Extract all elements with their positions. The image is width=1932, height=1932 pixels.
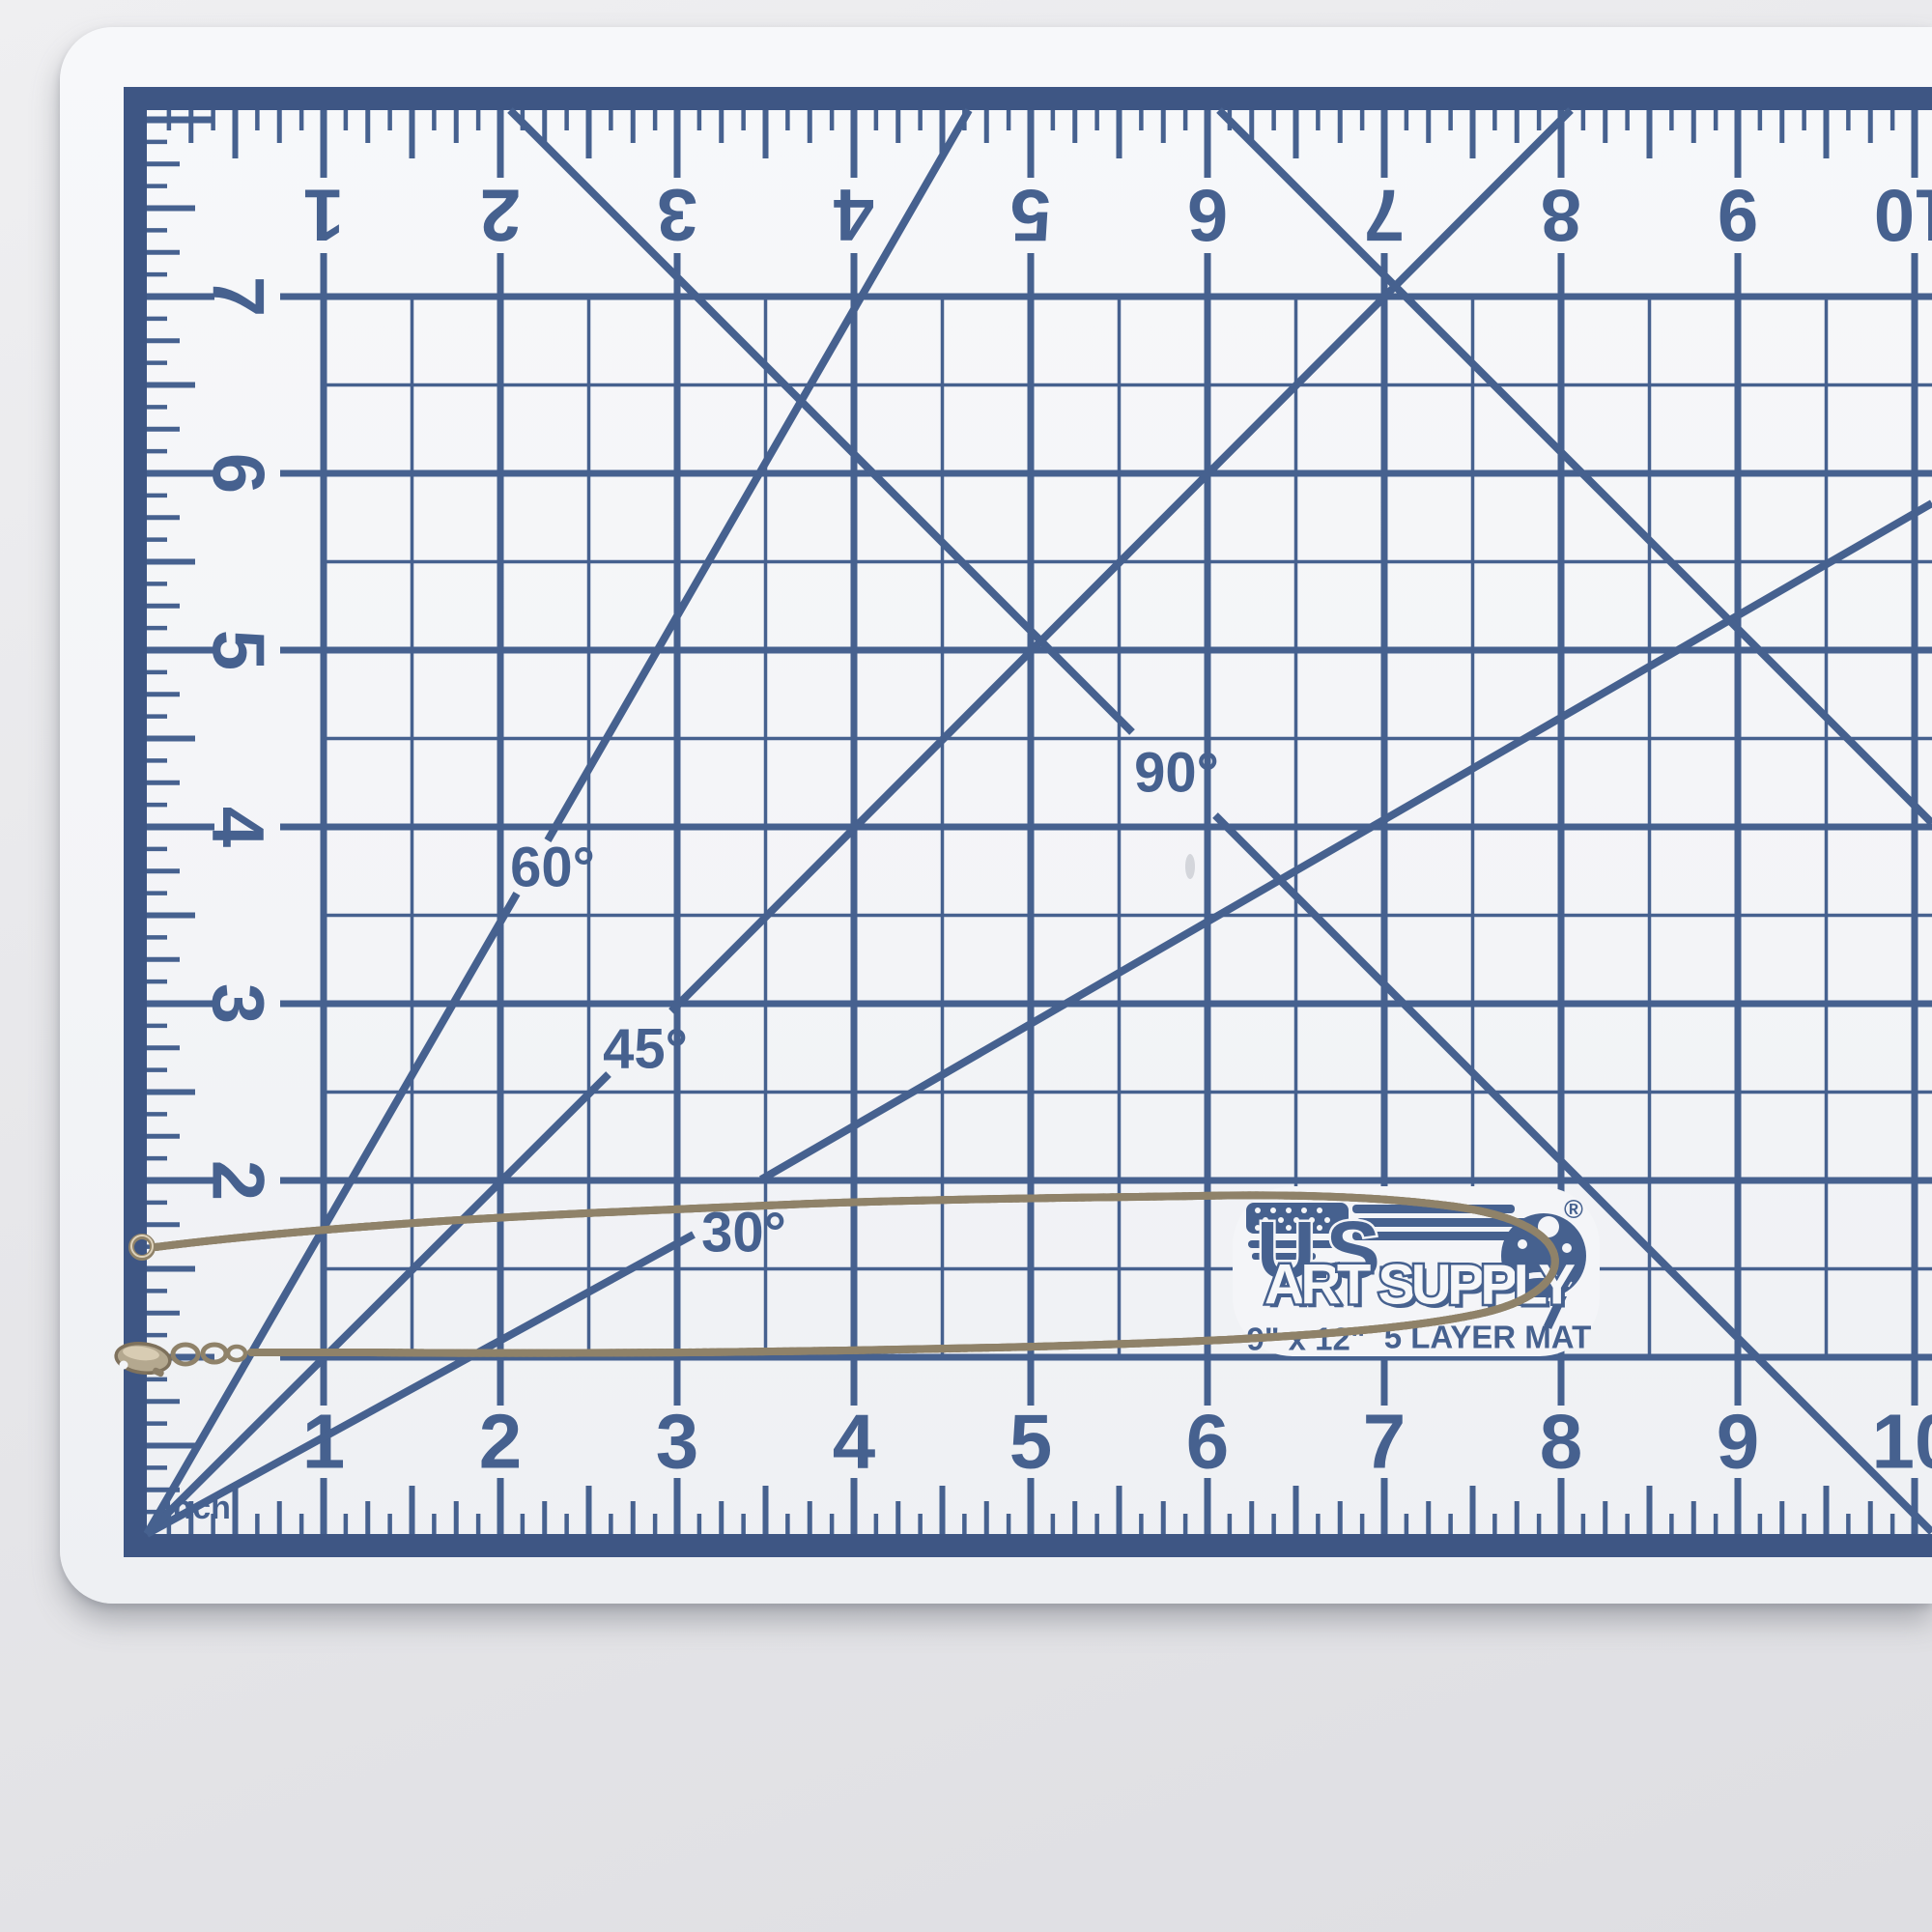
left-scale-number: 7 [197,276,279,317]
tick [918,1514,923,1534]
mat-artwork: 123456789101234567891076543230°45°60°90°… [0,0,1932,1932]
tick [387,110,392,130]
tick [147,250,180,255]
bottom-scale-number: 6 [1186,1399,1230,1485]
grid-line-inch-h [324,1178,1932,1184]
mat-border-bottom [124,1534,1932,1557]
grid-line-half-h [324,560,1932,564]
tick [255,110,260,130]
inch-stub [280,824,324,831]
tick [1691,1501,1696,1534]
tick [147,781,180,785]
tick [147,228,167,233]
grid-line-inch-h [324,470,1932,477]
tick [1470,1486,1476,1534]
tick [609,110,613,130]
tick [521,1514,526,1534]
tick [365,110,370,143]
tick [321,110,327,178]
tick [1625,1514,1630,1534]
clasp-hook-gap [120,1361,128,1370]
tick [299,110,304,130]
tick [631,110,636,143]
tick [1183,110,1188,130]
tick [147,1222,180,1227]
inch-stub [1205,253,1211,297]
tick [497,110,504,178]
tick [277,110,282,143]
inch-stub [280,294,324,300]
grid-line-inch-h [324,294,1932,300]
tick [233,1486,239,1534]
tick [147,582,167,586]
top-scale-number: 4 [834,174,874,256]
tick [674,1478,681,1534]
tick [1714,110,1719,130]
guide-line [147,1074,609,1534]
tick [1293,1486,1299,1534]
tick [1603,110,1607,143]
tick [1846,1514,1851,1534]
inch-stub [1912,253,1918,297]
tick [1581,110,1586,130]
registered-mark: ® [1564,1195,1583,1224]
guide-line [761,503,1932,1179]
tick [365,1501,370,1534]
unit-label: inch [163,1490,231,1526]
mat-border-top [124,87,1932,110]
angle-label: 90° [1134,742,1219,805]
tick [1581,1514,1586,1534]
tick [1205,110,1211,178]
grid-line-half-h [324,384,1932,387]
tick [147,1311,180,1316]
tick [147,515,180,520]
tick [147,1067,167,1072]
tick [1890,110,1895,130]
tick [410,1486,415,1534]
tick [1028,1478,1035,1534]
tick [918,110,923,130]
top-scale-number: 8 [1541,174,1581,256]
tick [321,1478,327,1534]
inch-stub [280,1178,324,1184]
tick [1492,1514,1497,1534]
top-scale-number: 6 [1187,174,1228,256]
tick [851,1478,858,1534]
tick [147,494,167,498]
tick [653,1514,658,1534]
tick [653,110,658,130]
tick [387,1514,392,1534]
tick [1028,110,1035,178]
grid-line-inch-h [324,1001,1932,1008]
clasp-link [228,1347,245,1360]
left-scale-number: 4 [197,807,279,847]
tick [830,1514,835,1534]
tick [1846,110,1851,130]
tick [497,1478,504,1534]
tick [147,1443,195,1449]
smudge [1185,854,1195,879]
tick [1691,110,1696,143]
inch-stub [1558,253,1565,297]
tick [147,383,195,388]
tick [1139,110,1144,130]
tick [147,1333,167,1338]
inch-stub [851,253,858,297]
mat-border-left [124,87,147,1557]
tick [147,1156,167,1161]
brand-logo: U.S. ART SUPPLY ART SUPPLY ® 9" x 12" 5 … [1233,1186,1600,1357]
tick [1381,110,1388,178]
tick [1183,1514,1188,1534]
tick [1448,110,1453,130]
tick [586,1486,592,1534]
grid-line-inch-h [324,647,1932,654]
grid-line-half-h [324,737,1932,741]
tick [851,110,858,178]
tick [1094,1514,1099,1534]
tick [147,317,167,322]
tick [609,1514,613,1534]
inch-stub [1028,253,1035,297]
tick [147,1090,195,1095]
tick [344,110,349,130]
grid-line-half-h [324,914,1932,918]
top-scale-number: 1 [303,174,344,256]
tick [1360,110,1365,130]
tick [586,110,592,158]
tick [147,957,180,962]
tick [1735,110,1742,178]
tick [1161,1501,1166,1534]
tick [147,1289,167,1293]
tick [147,670,167,675]
tick [1271,110,1276,130]
tick [984,110,989,143]
tick [1868,110,1873,143]
top-scale-number: 9 [1718,174,1758,256]
tick [147,868,180,873]
tick [1316,110,1321,130]
tick [719,1501,724,1534]
tick [1647,1486,1653,1534]
tick [1537,110,1542,130]
tick [1669,110,1674,130]
tick [895,110,900,143]
tick [1426,1501,1431,1534]
tick [874,110,879,130]
tick [895,1501,900,1534]
tick [1405,110,1409,130]
tick [808,1501,812,1534]
tick [1117,110,1122,158]
bottom-scale-number: 9 [1717,1399,1760,1485]
top-scale-number: 3 [657,174,697,256]
tick [1714,1514,1719,1534]
tick [1912,110,1918,178]
tick [1448,1514,1453,1534]
tick [147,1201,167,1206]
bottom-scale-number: 3 [656,1399,699,1485]
tick [147,140,167,145]
tick [147,604,180,609]
tick [564,1514,569,1534]
tick [147,736,195,742]
tick [410,110,415,158]
tick [1647,110,1653,158]
tick [147,626,167,631]
grid-line-inch-h [324,824,1932,831]
tick [147,161,180,166]
tick [984,1501,989,1534]
bottom-scale-number: 10 [1872,1399,1932,1485]
tick [1802,1514,1806,1534]
tick [1072,110,1077,143]
inch-stub [280,1001,324,1008]
tick [188,110,193,143]
tick [1492,110,1497,130]
tick [1161,110,1166,143]
tick [808,110,812,143]
tick [874,1514,879,1534]
tick [1381,1478,1388,1534]
tick [741,1514,746,1534]
grid-line-half-h [324,1091,1932,1094]
tick [147,913,195,919]
tick [940,1486,946,1534]
top-scale-number: 5 [1010,174,1051,256]
tick [631,1501,636,1534]
tick [1779,110,1784,143]
angle-guide-lines [147,110,1932,1534]
tick [147,272,167,277]
inch-stub [1735,253,1742,297]
tick [344,1514,349,1534]
tick [1338,110,1343,143]
tick [1228,1514,1233,1534]
top-scale-number: 2 [480,174,521,256]
tick [697,110,702,130]
tick [1515,1501,1520,1534]
tick [763,110,769,158]
tick [542,1501,547,1534]
tick [233,110,239,158]
tick [1735,1478,1742,1534]
angle-label: 45° [603,1018,688,1081]
tick [147,758,167,763]
tick [1669,1514,1674,1534]
tick [1537,1514,1542,1534]
tick [147,117,214,124]
tick [1051,1514,1056,1534]
tick [476,110,481,130]
tick [564,110,569,130]
tick [1779,1501,1784,1534]
tick [785,1514,790,1534]
tick [962,1514,967,1534]
tick [147,338,180,343]
top-scale-number: 7 [1364,174,1405,256]
tick [147,1465,167,1470]
tick [1007,110,1011,130]
tick [147,1378,167,1382]
tick [147,1421,167,1426]
tick [1625,110,1630,130]
tick [147,891,167,895]
tick [674,110,681,178]
tick [147,537,167,542]
tick [147,1134,180,1139]
tick [147,360,167,365]
tick [1139,1514,1144,1534]
tick [147,1112,167,1117]
tick [785,110,790,130]
left-scale-number: 2 [197,1160,279,1201]
tick [1360,1514,1365,1534]
left-scale-number: 3 [197,983,279,1024]
bottom-scale-number: 7 [1363,1399,1406,1485]
grid-line-half-h [324,1267,1932,1271]
tick [147,980,167,984]
tick [1824,1486,1830,1534]
inch-stub [497,253,504,297]
tick [147,184,167,188]
inch-stub [280,647,324,654]
tick [763,1486,769,1534]
brand-name-bottom: ART SUPPLY [1264,1254,1576,1317]
tick [299,1514,304,1534]
tick [147,714,167,719]
tick [147,559,195,565]
tick [1293,110,1299,158]
tick [1802,110,1806,130]
tick [1890,1514,1895,1534]
inch-stub [321,253,327,297]
tick [147,206,195,212]
tick [1426,110,1431,143]
tick [830,110,835,130]
tick [1758,1514,1763,1534]
tick [147,1045,180,1050]
tick [1271,1514,1276,1534]
tick [454,110,459,143]
tick [1824,110,1830,158]
tick [1558,1478,1565,1534]
bottom-scale-number: 5 [1009,1399,1053,1485]
tick [147,692,180,696]
tick [147,1024,167,1029]
bottom-scale-number: 8 [1540,1399,1583,1485]
tick [1338,1501,1343,1534]
tick [432,1514,437,1534]
tick [454,1501,459,1534]
inch-stub [280,470,324,477]
bottom-scale-number: 4 [833,1399,876,1485]
tick [741,110,746,130]
top-scale-number: 10 [1874,174,1932,256]
tick [1758,110,1763,130]
tick [147,405,167,410]
tick [147,1399,180,1404]
tick [255,1514,260,1534]
tick [1405,1514,1409,1534]
tick [1603,1501,1607,1534]
tick [1205,1478,1211,1534]
tick [719,110,724,143]
tick [1007,1514,1011,1534]
tick [147,449,167,454]
tick [1249,1501,1254,1534]
tick [1470,110,1476,158]
bottom-scale-number: 2 [479,1399,523,1485]
tick [147,847,167,852]
left-scale-number: 6 [197,453,279,494]
left-scale-number: 5 [197,630,279,670]
tick [147,1266,195,1272]
tick [1072,1501,1077,1534]
tick [147,427,180,432]
tick [1316,1514,1321,1534]
tick [1051,110,1056,130]
tick [1912,1478,1918,1534]
mat-print: 123456789101234567891076543230°45°60°90° [124,87,1932,1557]
tick [432,110,437,130]
tick [1117,1486,1122,1534]
tick [1094,110,1099,130]
tick [1515,110,1520,143]
tick [476,1514,481,1534]
tick [697,1514,702,1534]
tick [277,1501,282,1534]
photo-background: 123456789101234567891076543230°45°60°90°… [0,0,1932,1932]
tick [147,935,167,940]
angle-label: 60° [510,837,595,899]
tick [147,803,167,808]
tick [1868,1501,1873,1534]
